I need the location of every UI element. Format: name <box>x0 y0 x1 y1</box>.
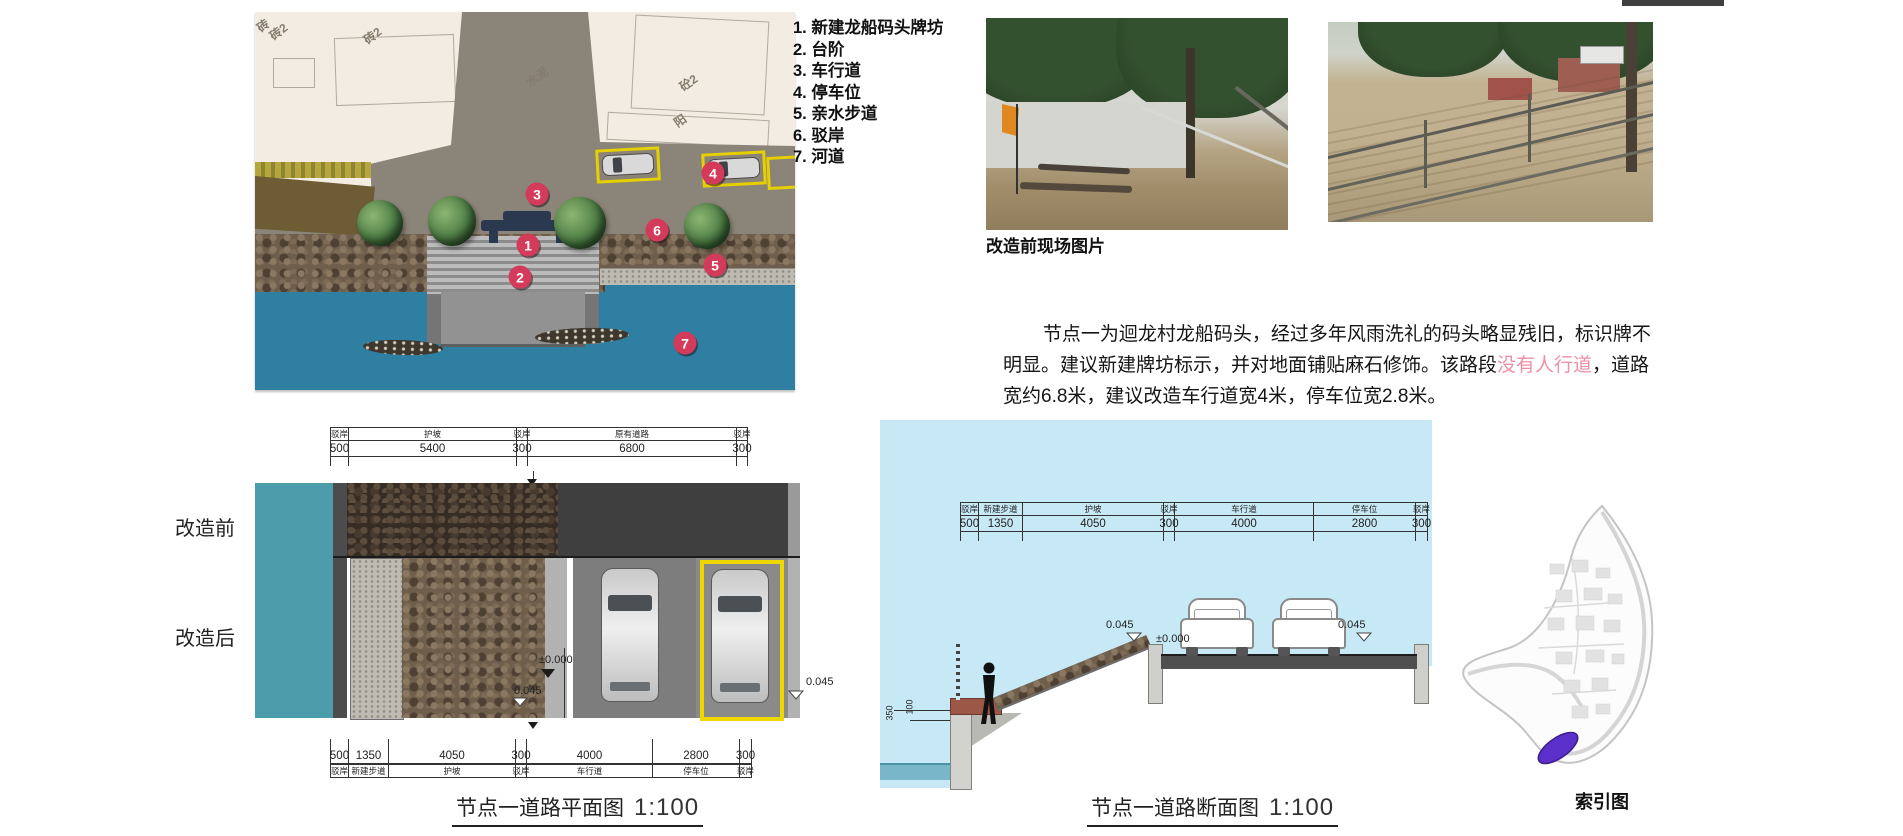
dim-label: 护坡 <box>349 428 517 441</box>
revetment-wall <box>333 483 347 718</box>
plan-title-text: 节点一道路平面图 <box>456 797 624 820</box>
dim-tick <box>737 457 748 466</box>
dim-tick <box>740 739 752 748</box>
site-plan-rendering: 砖砖2砖2水泥砼2阳 1234567 <box>255 12 795 390</box>
plan-title: 节点一道路平面图1:100 <box>452 792 703 827</box>
page-edge-bar <box>1622 0 1724 6</box>
site-photo-riverside <box>986 18 1288 230</box>
building-label: 砖2 <box>266 19 291 44</box>
dim-tick <box>528 457 737 466</box>
dim-value: 500 <box>961 516 979 532</box>
feature-marker-3: 3 <box>526 183 549 206</box>
elevation-mark <box>1126 632 1142 642</box>
gateway-cap <box>503 211 551 221</box>
dim-value: 4050 <box>1023 516 1164 532</box>
building-outline <box>631 15 770 116</box>
feature-marker-4: 4 <box>702 162 725 185</box>
feature-legend: 1. 新建龙船码头牌坊2. 台阶3. 车行道4. 停车位5. 亲水步道6. 驳岸… <box>793 18 943 169</box>
feature-marker-5: 5 <box>704 254 727 277</box>
car <box>601 153 654 177</box>
feature-marker-6: 6 <box>646 219 669 242</box>
feature-marker-1: 1 <box>517 234 540 257</box>
legend-item: 2. 台阶 <box>793 40 943 62</box>
row-label-before: 改造前 <box>175 512 235 541</box>
dim-label: 驳岸 <box>1416 503 1428 516</box>
row-label-after: 改造后 <box>175 622 235 651</box>
dim-value: 300 <box>1164 516 1175 532</box>
elevation-label: 0.045 <box>1106 619 1134 631</box>
site-photo-steps <box>1328 22 1653 222</box>
dim-350: 350 <box>885 705 895 720</box>
elevation-mark <box>541 669 555 678</box>
section-dimensions: 驳岸新建步道护坡驳岸车行道停车位驳岸5001350405030040002800… <box>960 502 1428 541</box>
car <box>601 568 659 702</box>
dim-extension-line <box>564 648 565 718</box>
after-parking <box>696 558 788 718</box>
before-slope <box>347 483 558 557</box>
dim-value: 300 <box>516 748 527 764</box>
legend-item: 4. 停车位 <box>793 83 943 105</box>
dim-tick <box>961 532 979 541</box>
dim-value: 4000 <box>1175 516 1314 532</box>
dim-tick <box>1164 532 1175 541</box>
car <box>1272 598 1346 656</box>
desc-highlight: 没有人行道 <box>1497 355 1592 376</box>
dim-tick <box>653 739 740 748</box>
dim-tick <box>1023 532 1164 541</box>
dim-100: 100 <box>905 699 915 714</box>
dim-value: 1350 <box>349 748 389 764</box>
road-edge-post <box>1414 644 1429 704</box>
dim-label: 车行道 <box>1175 503 1314 516</box>
section-title-text: 节点一道路断面图 <box>1091 797 1259 820</box>
dim-tick <box>331 457 349 466</box>
tree <box>684 203 730 249</box>
dim-label: 驳岸 <box>517 428 528 441</box>
index-map <box>1452 498 1702 786</box>
dim-tick <box>1416 532 1428 541</box>
legend-item: 7. 河道 <box>793 147 943 169</box>
dim-label: 驳岸 <box>740 765 752 778</box>
plan-title-scale: 1:100 <box>634 794 699 821</box>
dim-value: 4050 <box>389 748 516 764</box>
plan-bottom-dimensions: 5001350405030040002800300驳岸新建步道护坡驳岸车行道停车… <box>330 739 752 778</box>
section-title-scale: 1:100 <box>1269 794 1334 821</box>
tree-trunk <box>1186 48 1195 178</box>
dim-value: 5400 <box>349 441 517 457</box>
elevation-mark <box>788 690 804 700</box>
elevation-label: 0.045 <box>514 685 542 697</box>
dim-label: 驳岸 <box>516 765 527 778</box>
dim-tick <box>1314 532 1416 541</box>
design-sheet: 砖砖2砖2水泥砼2阳 1234567 1. 新建龙船码头牌坊2. 台阶3. 车行… <box>0 0 1903 836</box>
dim-tick <box>527 739 653 748</box>
dim-label: 原有道路 <box>528 428 737 441</box>
legend-item: 5. 亲水步道 <box>793 104 943 126</box>
dim-tick <box>979 532 1023 541</box>
dim-value: 500 <box>331 441 349 457</box>
dim-value: 4000 <box>527 748 653 764</box>
dim-tick <box>517 457 528 466</box>
elevation-mark <box>1356 632 1372 642</box>
tree <box>428 196 476 246</box>
leader-line <box>894 710 950 711</box>
dim-value: 1350 <box>979 516 1023 532</box>
gateway-post <box>489 230 498 243</box>
planting-strip <box>255 162 371 178</box>
building-outline <box>273 58 315 88</box>
feature-marker-7: 7 <box>674 332 697 355</box>
legend-item: 6. 驳岸 <box>793 126 943 148</box>
dim-value: 6800 <box>528 441 737 457</box>
dim-tick <box>516 739 527 748</box>
elevation-label: ±0.000 <box>539 654 573 666</box>
dim-value: 300 <box>737 441 748 457</box>
dim-label: 新建步道 <box>349 765 389 778</box>
node-description: 节点一为迴龙村龙船码头，经过多年风雨洗礼的码头略显残旧，标识牌不明显。建议新建牌… <box>1003 319 1660 412</box>
dim-tick <box>389 739 516 748</box>
dim-tick <box>1175 532 1314 541</box>
flag-pole <box>1016 104 1018 194</box>
waterside-walkway <box>600 268 795 285</box>
dim-label: 停车位 <box>653 765 740 778</box>
dim-label: 停车位 <box>1314 503 1416 516</box>
dim-label: 驳岸 <box>331 765 349 778</box>
car <box>1180 598 1254 656</box>
before-edge <box>788 483 800 557</box>
water-band <box>255 483 333 718</box>
water-level <box>880 763 952 780</box>
photo-caption: 改造前现场图片 <box>986 232 1105 257</box>
legend-item: 3. 车行道 <box>793 61 943 83</box>
dim-value: 2800 <box>1314 516 1416 532</box>
elevation-mark <box>512 697 528 707</box>
dim-label: 驳岸 <box>331 428 349 441</box>
plan-top-dimensions: 驳岸护坡驳岸原有道路驳岸50054003006800300 <box>330 427 748 466</box>
building-outline <box>334 34 456 106</box>
truck <box>1580 46 1624 64</box>
tree <box>357 200 403 246</box>
parking-bay <box>595 146 661 183</box>
index-map-caption: 索引图 <box>1575 788 1629 814</box>
section-title: 节点一道路断面图1:100 <box>1087 792 1338 827</box>
new-walkway <box>350 558 404 720</box>
dim-tick <box>349 739 389 748</box>
parking-bay <box>766 155 795 190</box>
dim-value: 300 <box>740 748 752 764</box>
dim-value: 2800 <box>653 748 740 764</box>
plan-drawing <box>255 483 800 718</box>
person-silhouette <box>976 662 1004 740</box>
dim-tick <box>349 457 517 466</box>
tree <box>554 197 606 249</box>
rail-post <box>1528 94 1531 162</box>
dim-label: 驳岸 <box>961 503 979 516</box>
dim-value: 500 <box>331 748 349 764</box>
elevation-label: ±0.000 <box>1156 633 1190 645</box>
road-edge-post <box>1148 644 1163 704</box>
feature-marker-2: 2 <box>509 266 532 289</box>
car <box>711 569 769 703</box>
dim-value: 300 <box>1416 516 1428 532</box>
road-deck <box>1161 654 1417 669</box>
section-drawing: 0.045 ±0.000 0.045 350 100 <box>880 420 1432 788</box>
legend-item: 1. 新建龙船码头牌坊 <box>793 18 943 40</box>
dim-label: 驳岸 <box>737 428 748 441</box>
tree-canopy <box>1358 22 1508 77</box>
after-road <box>567 558 708 718</box>
elevation-label: 0.045 <box>806 676 834 688</box>
dim-label: 车行道 <box>527 765 653 778</box>
leader-line <box>910 720 950 721</box>
dim-tick <box>331 739 349 748</box>
before-road <box>558 483 788 557</box>
railing <box>956 644 960 700</box>
dim-label: 护坡 <box>389 765 516 778</box>
section-cut-arrow <box>528 722 538 729</box>
dim-label: 护坡 <box>1023 503 1164 516</box>
dim-label: 驳岸 <box>1164 503 1175 516</box>
after-revetment <box>545 558 569 718</box>
dim-label: 新建步道 <box>979 503 1023 516</box>
boat <box>1020 182 1132 193</box>
rail-post <box>1424 120 1427 188</box>
dim-value: 300 <box>517 441 528 457</box>
elevation-label: 0.045 <box>1338 619 1366 631</box>
